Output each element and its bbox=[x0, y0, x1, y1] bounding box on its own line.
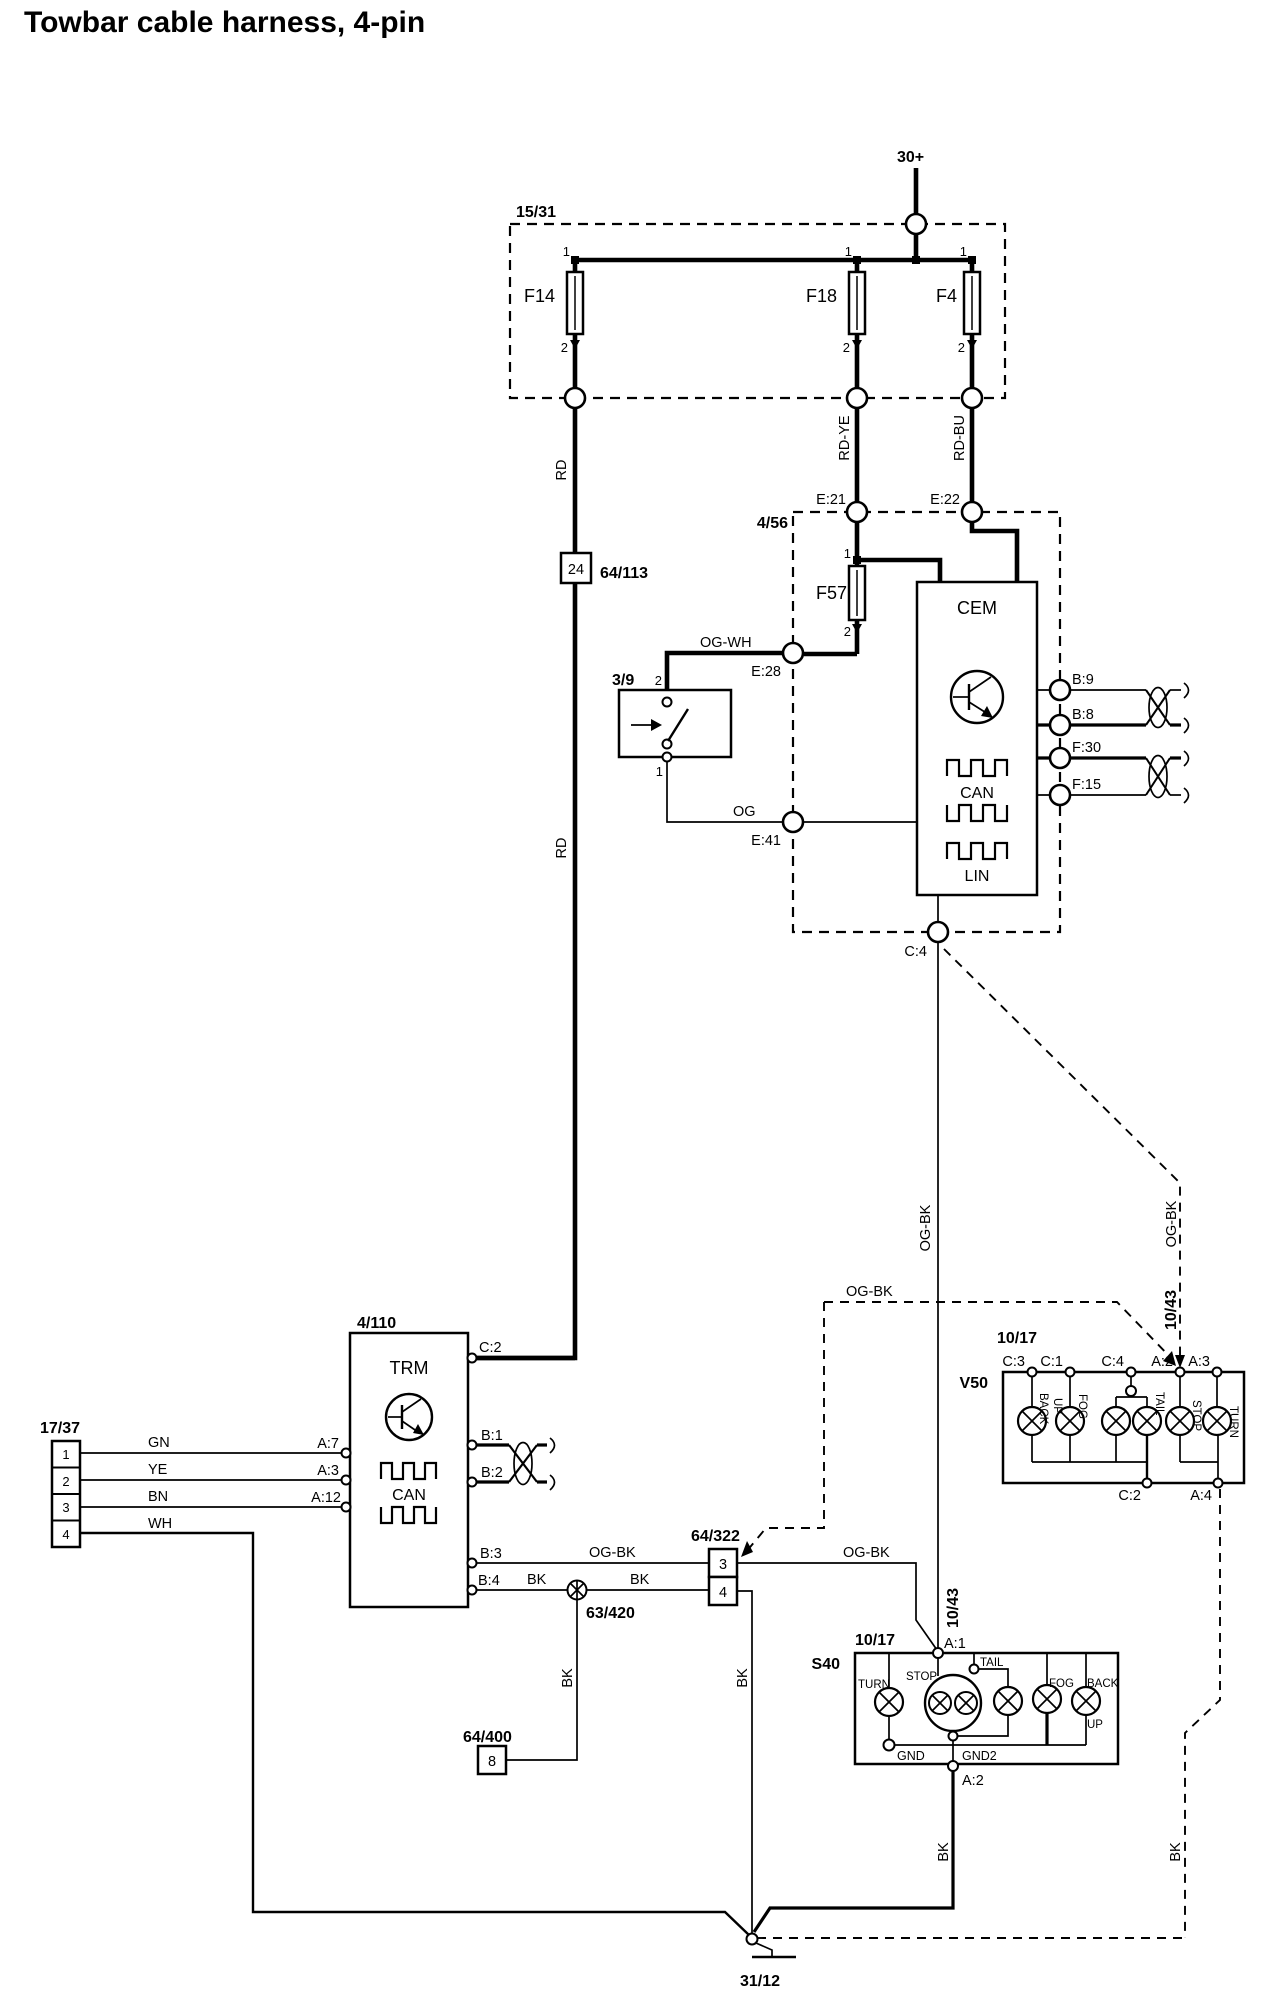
connector-e28 bbox=[783, 643, 803, 663]
fuse-f4-label: F4 bbox=[936, 286, 957, 306]
wire-bk-label-splice-drop: BK bbox=[560, 1668, 576, 1688]
v50-pin-c3 bbox=[1028, 1368, 1037, 1377]
f4-pin1: 1 bbox=[960, 244, 967, 259]
wire-rd-label-2: RD bbox=[554, 838, 570, 859]
trm-pin-b4 bbox=[468, 1586, 477, 1595]
fuse-f14 bbox=[567, 260, 583, 398]
wire-bk-label-pin4-drop: BK bbox=[735, 1668, 751, 1688]
v50-up-label: UP bbox=[1051, 1398, 1063, 1414]
b2-label: B:2 bbox=[481, 1465, 503, 1481]
twisted-pair-icon-f bbox=[1146, 751, 1189, 803]
s40-unit-id: 10/17 bbox=[855, 1632, 895, 1649]
pin2-tick-f4 bbox=[967, 340, 977, 349]
cem-body bbox=[917, 582, 1037, 895]
route-10-43-label-v50: 10/43 bbox=[1163, 1290, 1180, 1330]
pin2-tick-f57 bbox=[852, 624, 862, 633]
v50-stop-label: STOP bbox=[1190, 1400, 1202, 1431]
wire-ogbk-label-main: OG-BK bbox=[918, 1204, 934, 1251]
v50-tail-junction bbox=[1126, 1386, 1136, 1396]
junction-30plus bbox=[912, 256, 920, 264]
wire-rd-bu-label: RD-BU bbox=[952, 415, 968, 461]
connector-64-400: 8 bbox=[478, 1746, 506, 1774]
junction-f57 bbox=[853, 556, 861, 564]
v50-c4-label: C:4 bbox=[1101, 1354, 1124, 1370]
b8-label: B:8 bbox=[1072, 707, 1094, 723]
connector-f15 bbox=[1050, 785, 1070, 805]
wire-s40-ground bbox=[754, 1771, 953, 1932]
trm-can-label: CAN bbox=[392, 1487, 426, 1504]
supply-30-label: 30+ bbox=[897, 149, 924, 166]
pin-1: 1 bbox=[62, 1447, 69, 1462]
v50-a4-label: A:4 bbox=[1190, 1488, 1212, 1504]
f14-pin1: 1 bbox=[563, 244, 570, 259]
wire-wh-label: WH bbox=[148, 1516, 172, 1532]
wire-e21-to-cem bbox=[857, 560, 940, 582]
fusebox-id: 15/31 bbox=[516, 204, 556, 221]
s40-back-label: BACK bbox=[1087, 1678, 1119, 1690]
v50-fog-label: FOG bbox=[1076, 1394, 1088, 1419]
connector-64-113-pin: 24 bbox=[568, 562, 584, 578]
connector-64-113-id: 64/113 bbox=[600, 565, 648, 582]
pin-3: 3 bbox=[62, 1500, 69, 1515]
s40-up-label: UP bbox=[1087, 1719, 1103, 1731]
f18-pin2: 2 bbox=[843, 340, 850, 355]
trm-pin-c2 bbox=[468, 1354, 477, 1363]
fuse-f4 bbox=[964, 260, 980, 398]
route-10-43-label-s40: 10/43 bbox=[945, 1588, 962, 1628]
trm-pin-a7 bbox=[342, 1449, 351, 1458]
connector-f30 bbox=[1050, 748, 1070, 768]
connector-64-322-id: 64/322 bbox=[691, 1528, 740, 1545]
v50-tail-label: TAIL bbox=[1153, 1392, 1165, 1416]
switch-pin2-label: 2 bbox=[655, 673, 662, 688]
trm-pin-b1 bbox=[468, 1441, 477, 1450]
v50-pin-a4 bbox=[1214, 1479, 1223, 1488]
wire-break-icon bbox=[550, 1475, 555, 1490]
v50-c3-label: C:3 bbox=[1002, 1354, 1025, 1370]
a3-label: A:3 bbox=[317, 1463, 339, 1479]
connector-b8 bbox=[1050, 715, 1070, 735]
a12-label: A:12 bbox=[311, 1490, 341, 1506]
s40-gnd bbox=[884, 1740, 895, 1751]
a7-label: A:7 bbox=[317, 1436, 339, 1452]
s40-stop-label: STOP bbox=[906, 1671, 937, 1683]
wire-ogbk-label-right: OG-BK bbox=[843, 1545, 890, 1561]
s40-a1-label: A:1 bbox=[944, 1636, 966, 1652]
c4-label: C:4 bbox=[904, 944, 927, 960]
connector-e21 bbox=[847, 502, 867, 522]
s40-gnd2-label: GND2 bbox=[962, 1749, 997, 1763]
e22-label: E:22 bbox=[930, 492, 960, 508]
f30-label: F:30 bbox=[1072, 740, 1101, 756]
b1-label: B:1 bbox=[481, 1428, 503, 1444]
fuse-f14-label: F14 bbox=[524, 286, 555, 306]
ground-junction bbox=[747, 1934, 758, 1945]
switch-id: 3/9 bbox=[612, 672, 634, 689]
fuse-f57-label: F57 bbox=[816, 583, 847, 603]
wire-og bbox=[667, 762, 782, 822]
cem-can-label: CAN bbox=[960, 785, 994, 802]
wire-break-icon bbox=[1184, 683, 1189, 698]
v50-c2-label: C:2 bbox=[1118, 1488, 1141, 1504]
s40-stop-bottom-junction bbox=[949, 1732, 958, 1741]
s40-name: S40 bbox=[812, 1656, 841, 1673]
arrowhead-pin3 bbox=[741, 1541, 753, 1557]
v50-pin-c4 bbox=[1127, 1368, 1136, 1377]
cem-label: CEM bbox=[957, 598, 997, 618]
connector-e22 bbox=[962, 502, 982, 522]
wire-ogbk-to-s40 bbox=[737, 1563, 937, 1650]
s40-gnd-label: GND bbox=[897, 1749, 925, 1763]
trm-pin-a12 bbox=[342, 1503, 351, 1512]
s40-turn-label: TURN bbox=[858, 1679, 890, 1691]
wire-break-icon bbox=[1184, 751, 1189, 766]
v50-a3-label: A:3 bbox=[1188, 1354, 1210, 1370]
wire-gn-label: GN bbox=[148, 1435, 170, 1451]
connector-f4-out bbox=[962, 388, 982, 408]
wire-rd-label: RD bbox=[554, 460, 570, 481]
s40-pin-a1 bbox=[933, 1648, 943, 1658]
switch-pin1-label: 1 bbox=[656, 764, 663, 779]
s40-tail-feed bbox=[970, 1665, 979, 1674]
splice-63-420-id: 63/420 bbox=[586, 1605, 635, 1622]
cem-lin-label: LIN bbox=[965, 868, 990, 885]
cem-module: CEM CAN LIN bbox=[917, 582, 1037, 895]
connector-c4 bbox=[928, 922, 948, 942]
e21-label: E:21 bbox=[816, 492, 846, 508]
wire-break-icon bbox=[1184, 788, 1189, 803]
s40-gnd2-pin bbox=[948, 1761, 958, 1771]
pin-4: 4 bbox=[719, 1585, 727, 1601]
v50-name: V50 bbox=[960, 1375, 989, 1392]
pin2-tick-f18 bbox=[852, 340, 862, 349]
b9-label: B:9 bbox=[1072, 672, 1094, 688]
b3-label: B:3 bbox=[480, 1546, 502, 1562]
connector-17-37-id: 17/37 bbox=[40, 1420, 80, 1437]
v50-pin-c1 bbox=[1066, 1368, 1075, 1377]
connector-e41 bbox=[783, 812, 803, 832]
wire-break-icon bbox=[550, 1438, 555, 1453]
v50-back-label: BACK bbox=[1037, 1393, 1049, 1425]
fuse-f18-label: F18 bbox=[806, 286, 837, 306]
v50-pin-a2 bbox=[1176, 1368, 1185, 1377]
trm-can-pair bbox=[477, 1438, 555, 1490]
wire-og-wh-label: OG-WH bbox=[700, 635, 752, 651]
connector-64-322: 3 4 bbox=[709, 1549, 737, 1605]
wire-break-icon bbox=[1184, 718, 1189, 733]
cem-box-id: 4/56 bbox=[757, 515, 788, 532]
f4-pin2: 2 bbox=[958, 340, 965, 355]
pin2-tick-f14 bbox=[570, 340, 580, 349]
wire-e22-to-cem bbox=[972, 523, 1017, 582]
f15-label: F:15 bbox=[1072, 777, 1101, 793]
wiring-diagram-page: Towbar cable harness, 4-pin bbox=[0, 0, 1280, 2000]
splice-63-420 bbox=[568, 1581, 587, 1600]
route-branch-to-64-322 bbox=[746, 1302, 824, 1552]
switch-pin-1 bbox=[663, 753, 672, 762]
connector-30plus bbox=[906, 214, 926, 234]
f57-pin1: 1 bbox=[844, 546, 851, 561]
wire-ogbk-label-b3: OG-BK bbox=[589, 1545, 636, 1561]
switch-contact-bottom bbox=[663, 740, 672, 749]
c2-label: C:2 bbox=[479, 1340, 502, 1356]
route-c4-to-v50-a2 bbox=[944, 949, 1180, 1358]
f18-pin1: 1 bbox=[845, 244, 852, 259]
wire-ye-label: YE bbox=[148, 1462, 168, 1478]
page-title: Towbar cable harness, 4-pin bbox=[24, 6, 425, 39]
wire-bn-label: BN bbox=[148, 1489, 168, 1505]
trm-box-id: 4/110 bbox=[357, 1315, 396, 1332]
trm-module: TRM CAN bbox=[342, 1333, 477, 1607]
wire-bk-label-s40-ground: BK bbox=[936, 1842, 952, 1862]
connector-64-113: 24 bbox=[561, 553, 591, 583]
connector-f18-out bbox=[847, 388, 867, 408]
connector-b9 bbox=[1050, 680, 1070, 700]
route-v50-a4-ground bbox=[1185, 1489, 1220, 1938]
e41-label: E:41 bbox=[751, 833, 781, 849]
arrowhead-a2-vertical bbox=[1175, 1355, 1185, 1368]
wire-bk-label-1: BK bbox=[527, 1572, 547, 1588]
trm-pin-b2 bbox=[468, 1478, 477, 1487]
connector-64-400-pin: 8 bbox=[488, 1754, 496, 1770]
wire-bk-to-ground bbox=[737, 1591, 752, 1935]
s40-tail-label: TAIL bbox=[980, 1657, 1004, 1669]
wire-ogbk-label-dash: OG-BK bbox=[1164, 1200, 1180, 1247]
wire-og-label: OG bbox=[733, 804, 756, 820]
wire-rd bbox=[477, 409, 575, 1358]
connector-f14-out bbox=[565, 388, 585, 408]
v50-turn-label: TURN bbox=[1227, 1406, 1239, 1438]
wire-rd-ye-label: RD-YE bbox=[837, 415, 853, 460]
feed-wires bbox=[477, 409, 972, 1358]
ground-point bbox=[747, 1934, 797, 1958]
wire-ogbk-label-branch: OG-BK bbox=[846, 1284, 893, 1300]
switch-3-9-body bbox=[619, 690, 731, 757]
b4-label: B:4 bbox=[478, 1573, 500, 1589]
twisted-pair-icon-b bbox=[1146, 683, 1189, 733]
trm-label: TRM bbox=[390, 1358, 429, 1378]
towbar-wiring-diagram: Towbar cable harness, 4-pin bbox=[0, 0, 1280, 2000]
v50-pin-c2 bbox=[1143, 1479, 1152, 1488]
wire-bk-label-2: BK bbox=[630, 1572, 650, 1588]
v50-lamp-cluster bbox=[1003, 1368, 1244, 1488]
switch-contact-top bbox=[663, 698, 672, 707]
trm-pin-b3 bbox=[468, 1559, 477, 1568]
connector-64-400-id: 64/400 bbox=[463, 1729, 512, 1746]
pin-3: 3 bbox=[719, 1557, 727, 1573]
pin-2: 2 bbox=[62, 1474, 69, 1489]
v50-a2-label: A:2 bbox=[1151, 1354, 1173, 1370]
f57-pin2: 2 bbox=[844, 624, 851, 639]
f14-pin2: 2 bbox=[561, 340, 568, 355]
v50-c1-label: C:1 bbox=[1040, 1354, 1063, 1370]
ground-id: 31/12 bbox=[740, 1973, 780, 1990]
pin-4: 4 bbox=[62, 1527, 69, 1542]
fuse-f18 bbox=[849, 260, 865, 398]
e28-label: E:28 bbox=[751, 664, 781, 680]
v50-unit-id: 10/17 bbox=[997, 1330, 1037, 1347]
wire-bk-label-v50-ground: BK bbox=[1168, 1842, 1184, 1862]
s40-a2-label: A:2 bbox=[962, 1773, 984, 1789]
trm-pin-a3 bbox=[342, 1476, 351, 1485]
s40-fog-label: FOG bbox=[1049, 1678, 1074, 1690]
v50-pin-a3 bbox=[1213, 1368, 1222, 1377]
